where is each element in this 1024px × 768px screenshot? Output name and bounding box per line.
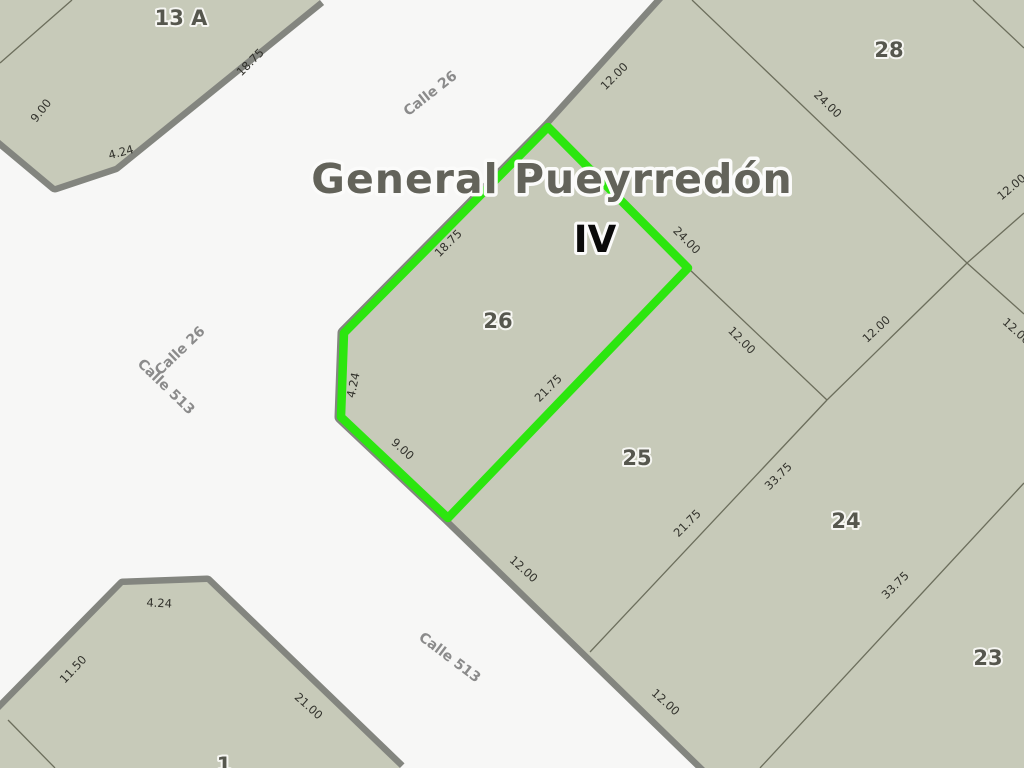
map-section-label: IV: [574, 218, 617, 261]
parcel-label-24: 24: [831, 509, 860, 533]
parcel-label-26: 26: [483, 309, 512, 333]
map-title: General Pueyrredón: [311, 155, 792, 203]
cadastral-map: Calle 26Calle 26Calle 513Calle 513 18.75…: [0, 0, 1024, 768]
parcel-label-1: 1: [217, 753, 232, 768]
street-label-calle-513: Calle 513: [415, 629, 483, 686]
street-label-calle-26: Calle 26: [401, 68, 461, 120]
parcel-label-28: 28: [874, 38, 903, 62]
map-canvas: Calle 26Calle 26Calle 513Calle 513 18.75…: [0, 0, 1024, 768]
measurement-label: 4.24: [146, 595, 172, 610]
parcel-label-13-a: 13 A: [155, 6, 209, 30]
parcel-label-23: 23: [973, 646, 1002, 670]
parcel-label-25: 25: [622, 446, 651, 470]
